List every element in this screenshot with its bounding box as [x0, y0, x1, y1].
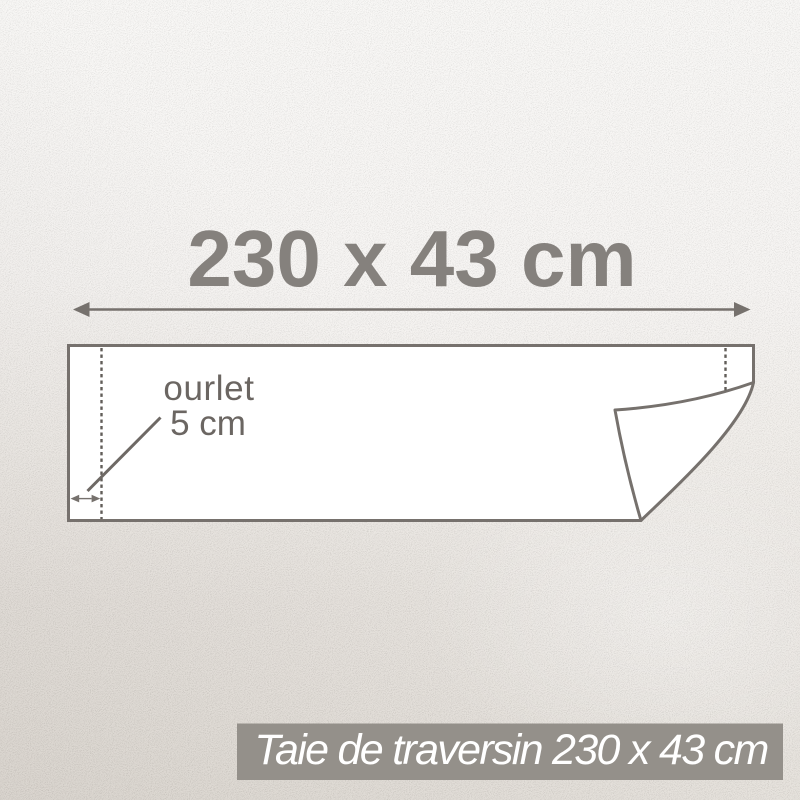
svg-text:5 cm: 5 cm	[170, 404, 246, 443]
svg-text:230 x 43 cm: 230 x 43 cm	[187, 214, 636, 303]
svg-text:ourlet: ourlet	[163, 369, 254, 408]
svg-text:Taie de traversin 230 x 43 cm: Taie de traversin 230 x 43 cm	[254, 726, 767, 774]
